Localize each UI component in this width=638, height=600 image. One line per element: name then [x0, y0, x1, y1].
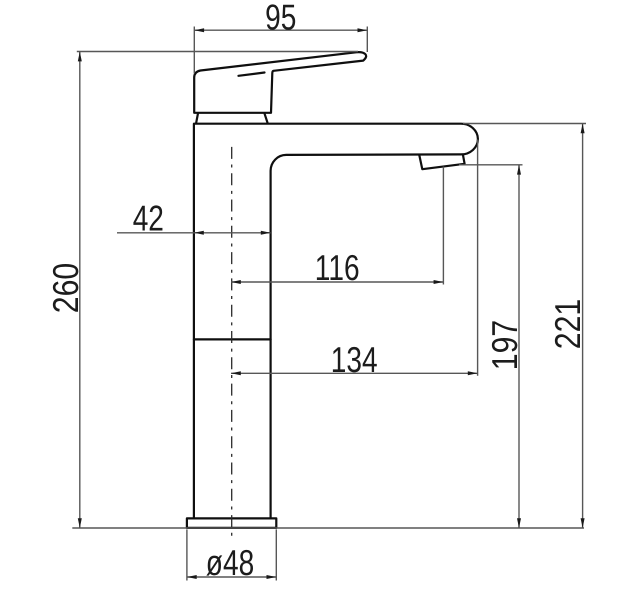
svg-text:95: 95 — [265, 0, 296, 37]
svg-text:42: 42 — [133, 198, 164, 239]
svg-text:134: 134 — [331, 339, 378, 380]
svg-text:197: 197 — [484, 320, 525, 370]
svg-text:ø48: ø48 — [206, 542, 254, 583]
svg-text:221: 221 — [547, 299, 588, 349]
svg-text:116: 116 — [315, 247, 360, 288]
svg-text:260: 260 — [45, 263, 86, 313]
